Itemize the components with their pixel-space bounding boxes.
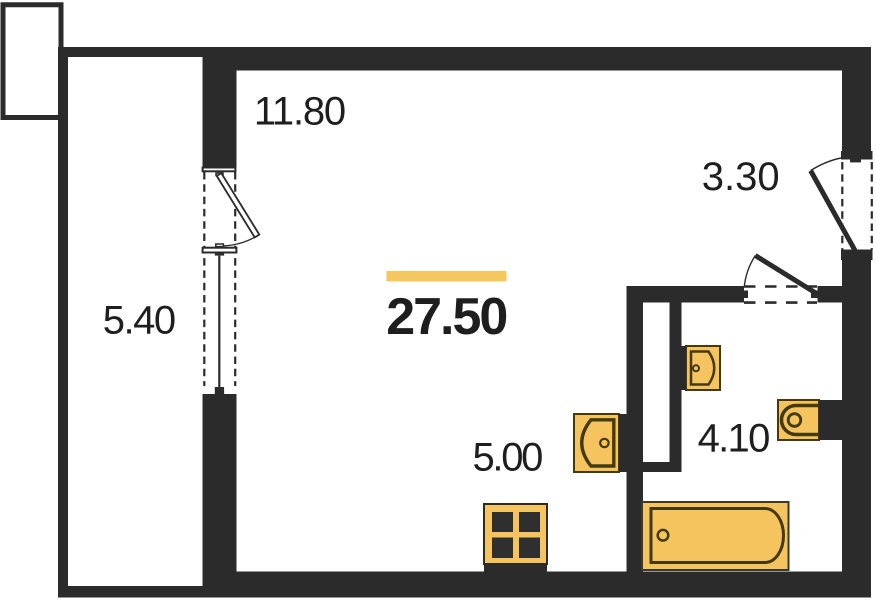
svg-text:5.00: 5.00 bbox=[472, 436, 542, 480]
svg-text:27.50: 27.50 bbox=[386, 288, 506, 346]
svg-text:4.10: 4.10 bbox=[698, 416, 770, 460]
svg-text:3.30: 3.30 bbox=[702, 155, 780, 199]
svg-text:5.40: 5.40 bbox=[103, 299, 175, 343]
svg-text:11.80: 11.80 bbox=[254, 90, 345, 134]
